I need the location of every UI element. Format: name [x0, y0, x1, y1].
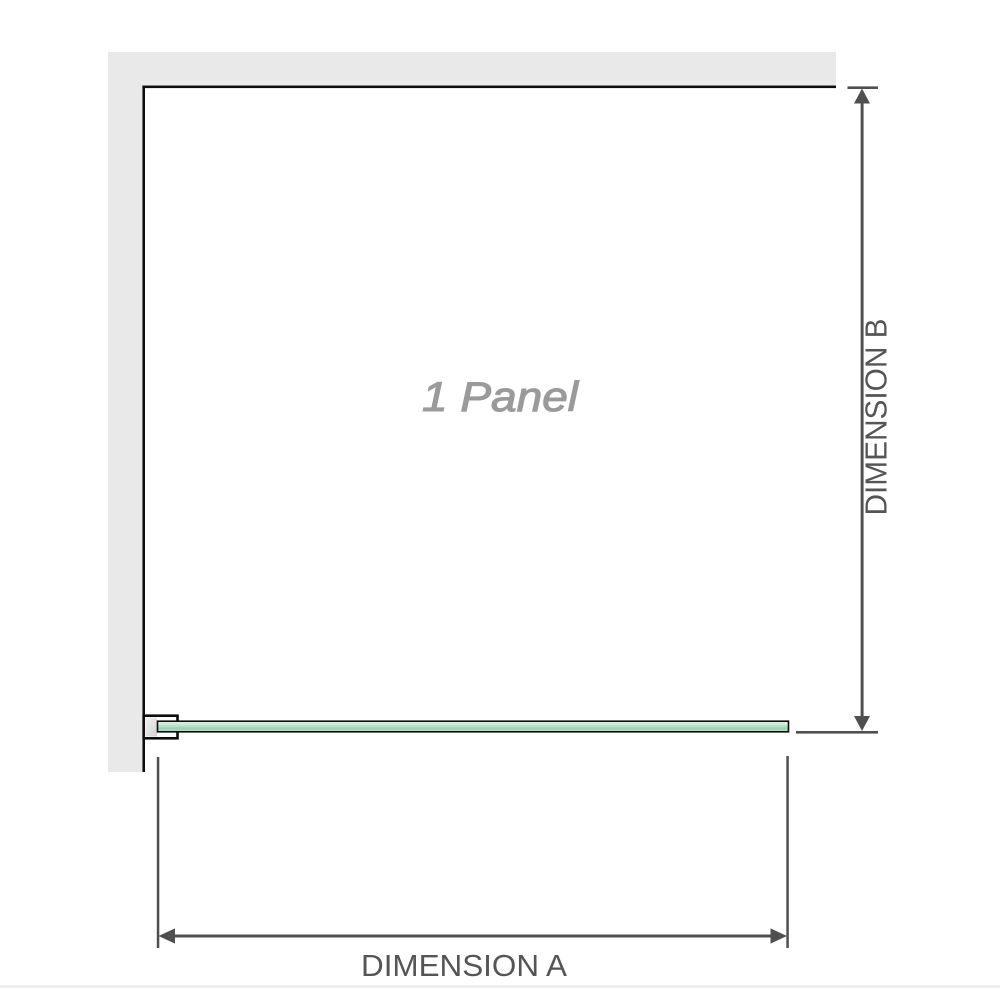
svg-text:1 Panel: 1 Panel: [422, 373, 580, 420]
svg-text:DIMENSION A: DIMENSION A: [361, 948, 567, 983]
svg-text:DIMENSION B: DIMENSION B: [859, 319, 894, 516]
